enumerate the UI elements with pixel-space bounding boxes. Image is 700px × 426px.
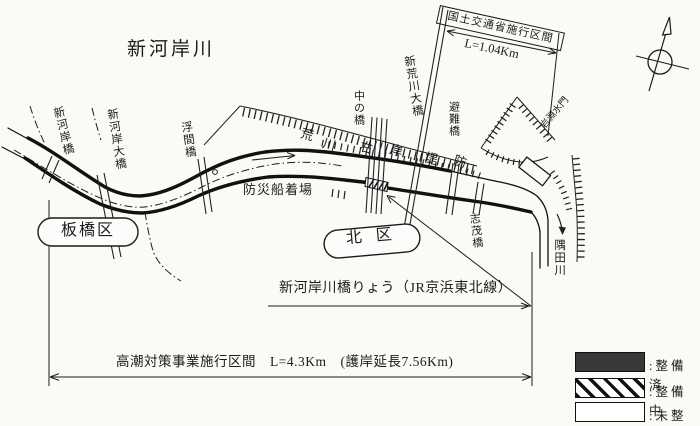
levee-hachures: [204, 106, 480, 176]
legend-swatch-not-yet: [575, 402, 645, 422]
small-circle-marker: [213, 170, 218, 175]
dock-label: 防災船着場: [243, 183, 313, 197]
sumida-flow-arrow: [557, 214, 566, 235]
jr-bridge-label: 新河岸川橋りょう（JR京浜東北線）: [279, 282, 512, 297]
bridge-label-nakanohashi: 中の橋: [352, 90, 364, 126]
river-title: 新河岸川: [127, 40, 215, 60]
storm-surge-section-label: 高潮対策事業施行区間 L=4.3Km (護岸延長7.56Km): [116, 355, 453, 369]
legend-label-not-yet: :未整備: [649, 405, 700, 426]
bridge-label-shimobashi: 志茂橋: [467, 212, 482, 249]
nakanohashi-jr-crossing: [366, 117, 387, 214]
dock-symbol: [332, 189, 345, 199]
mouth-east-bank: [450, 171, 548, 266]
legend-swatch-in-progress: [575, 378, 645, 398]
river-label-sumidagawa: 隅田川: [553, 239, 565, 277]
north-compass-icon: [636, 17, 689, 91]
bridge-label-hinanbashi: 避難橋: [447, 101, 459, 137]
legend-swatch-done: [575, 352, 645, 372]
ward-label-itabashi: 板橋区: [38, 223, 138, 240]
river-banks: [2, 128, 548, 268]
sluice-wedge: [481, 97, 555, 186]
scanned-river-map: 新河岸川 板橋区 北区 新河岸橋 新河岸大橋 浮間橋 中の橋 新荒川大橋 避難橋…: [0, 0, 700, 426]
shimobashi-bridge: [473, 182, 484, 215]
